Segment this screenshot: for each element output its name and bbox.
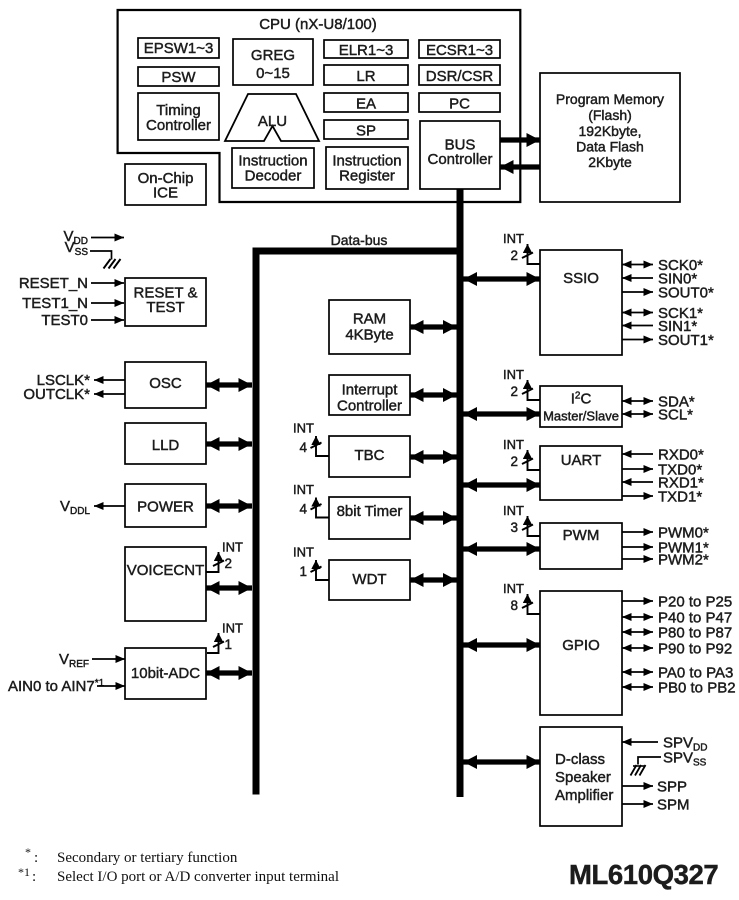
svg-text:DSR/CSR: DSR/CSR — [426, 68, 494, 85]
svg-text:Controller: Controller — [337, 398, 402, 415]
svg-text:1: 1 — [299, 564, 307, 579]
svg-text:Program Memory: Program Memory — [556, 91, 664, 107]
svg-text:EA: EA — [356, 96, 376, 113]
svg-text:SCL*: SCL* — [658, 407, 693, 424]
svg-text:8bit Timer: 8bit Timer — [337, 503, 403, 520]
svg-text:Master/Slave: Master/Slave — [543, 409, 619, 424]
svg-text:SOUT0*: SOUT0* — [658, 285, 714, 302]
svg-text:UART: UART — [561, 452, 602, 469]
svg-text:GPIO: GPIO — [562, 637, 600, 654]
svg-text:INT: INT — [293, 482, 314, 497]
svg-text:Data-bus: Data-bus — [331, 232, 388, 248]
svg-text:GREG: GREG — [251, 47, 295, 64]
svg-text:Interrupt: Interrupt — [342, 382, 399, 399]
svg-text:PSW: PSW — [161, 69, 196, 86]
svg-text:Controller: Controller — [427, 151, 492, 168]
svg-text:2: 2 — [510, 248, 518, 263]
svg-text:192Kbyte,: 192Kbyte, — [578, 123, 641, 139]
svg-text:SPM: SPM — [657, 797, 690, 814]
svg-text:INT: INT — [503, 367, 524, 382]
svg-text:TEST1_N: TEST1_N — [22, 295, 88, 312]
svg-text:WDT: WDT — [352, 571, 386, 588]
svg-text:INT: INT — [293, 421, 314, 436]
svg-text:Speaker: Speaker — [555, 769, 611, 786]
svg-text:3: 3 — [510, 520, 518, 535]
svg-text:10bit-ADC: 10bit-ADC — [131, 665, 200, 682]
svg-text:SP: SP — [356, 123, 376, 140]
svg-text:SPP: SPP — [657, 779, 687, 796]
svg-text:INT: INT — [222, 621, 243, 636]
svg-text:PB0 to PB2: PB0 to PB2 — [658, 680, 736, 697]
svg-text:INT: INT — [222, 540, 243, 555]
svg-text:4: 4 — [299, 440, 307, 455]
svg-text:INT: INT — [503, 503, 524, 518]
svg-text:Data Flash: Data Flash — [576, 139, 644, 155]
svg-text:SOUT1*: SOUT1* — [658, 332, 714, 349]
svg-text:4: 4 — [299, 502, 307, 517]
svg-text:TXD1*: TXD1* — [658, 489, 702, 506]
svg-text:INT: INT — [503, 437, 524, 452]
svg-text:ML610Q327: ML610Q327 — [569, 859, 718, 890]
svg-text:INT: INT — [503, 581, 524, 596]
svg-text:2Kbyte: 2Kbyte — [588, 154, 632, 170]
svg-text:SSIO: SSIO — [563, 270, 599, 287]
svg-text:1: 1 — [225, 637, 233, 652]
svg-text:ELR1~3: ELR1~3 — [339, 42, 394, 59]
svg-text:2: 2 — [510, 454, 518, 469]
svg-text:Amplifier: Amplifier — [555, 787, 613, 804]
svg-text:AIN0 to AIN7*1: AIN0 to AIN7*1 — [8, 678, 105, 695]
svg-text:Decoder: Decoder — [245, 168, 302, 185]
svg-text:TEST0: TEST0 — [41, 312, 88, 329]
svg-text:PC: PC — [449, 96, 470, 113]
svg-text:PWM: PWM — [563, 527, 600, 544]
svg-text:Controller: Controller — [146, 117, 211, 134]
svg-text:P20 to P25: P20 to P25 — [658, 594, 732, 611]
svg-text:I2C: I2C — [571, 391, 592, 408]
svg-text:2: 2 — [225, 556, 233, 571]
svg-text:P90 to P92: P90 to P92 — [658, 641, 732, 658]
svg-text:OUTCLK*: OUTCLK* — [23, 386, 90, 403]
svg-text:0~15: 0~15 — [256, 65, 290, 82]
svg-text:POWER: POWER — [137, 499, 194, 516]
svg-text:RAM: RAM — [353, 311, 386, 328]
svg-text:PWM2*: PWM2* — [658, 552, 709, 569]
svg-text:TEST: TEST — [146, 299, 184, 316]
svg-text:Secondary or tertiary function: Secondary or tertiary function — [57, 850, 238, 866]
svg-text:INT: INT — [293, 545, 314, 560]
svg-text:2: 2 — [510, 384, 518, 399]
svg-text:INT: INT — [503, 231, 524, 246]
svg-text:8: 8 — [510, 598, 518, 613]
svg-text:RESET_N: RESET_N — [19, 275, 88, 292]
svg-text:D-class: D-class — [555, 751, 605, 768]
svg-text:Select I/O port or A/D convert: Select I/O port or A/D converter input t… — [57, 869, 339, 885]
svg-text:Register: Register — [339, 168, 395, 185]
svg-text:VOICECNT: VOICECNT — [127, 562, 205, 579]
svg-text:OSC: OSC — [149, 375, 182, 392]
svg-text:(Flash): (Flash) — [588, 107, 632, 123]
svg-text:ECSR1~3: ECSR1~3 — [426, 42, 493, 59]
svg-text:P80 to P87: P80 to P87 — [658, 625, 732, 642]
svg-text:LLD: LLD — [152, 437, 180, 454]
svg-text:TBC: TBC — [355, 447, 385, 464]
svg-text:CPU (nX-U8/100): CPU (nX-U8/100) — [259, 16, 377, 33]
svg-text:4KByte: 4KByte — [345, 327, 393, 344]
svg-text:LR: LR — [356, 68, 375, 85]
svg-text:ALU: ALU — [258, 113, 287, 130]
svg-text:ICE: ICE — [153, 185, 178, 202]
svg-text:EPSW1~3: EPSW1~3 — [144, 40, 214, 57]
